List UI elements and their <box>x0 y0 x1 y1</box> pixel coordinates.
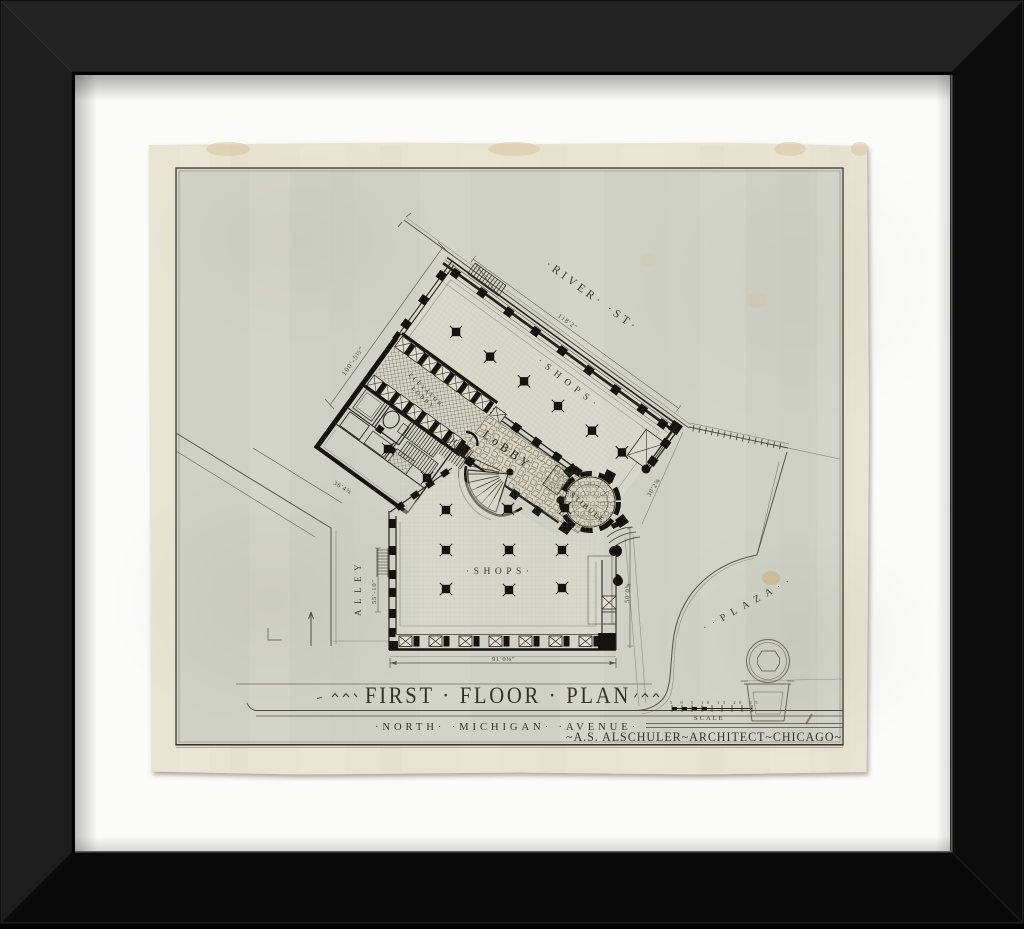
svg-text:ALLEY: ALLEY <box>353 559 363 616</box>
svg-text:·SHOPS·: ·SHOPS· <box>466 567 536 577</box>
svg-text:FIRST · FLOOR · PLAN: FIRST · FLOOR · PLAN <box>365 683 631 708</box>
svg-text:50′0⅝: 50′0⅝ <box>624 583 632 603</box>
svg-text:SCALE: SCALE <box>694 715 725 722</box>
svg-text:5 0 5 10 15 20 25: 5 0 5 10 15 20 25 <box>670 700 761 705</box>
svg-text:~A.S. ALSCHULER~ARCHITECT~CHIC: ~A.S. ALSCHULER~ARCHITECT~CHICAGO~ <box>566 730 842 744</box>
svg-text:55′-10″: 55′-10″ <box>371 579 378 604</box>
svg-text:91′0⅛″: 91′0⅛″ <box>492 656 516 663</box>
